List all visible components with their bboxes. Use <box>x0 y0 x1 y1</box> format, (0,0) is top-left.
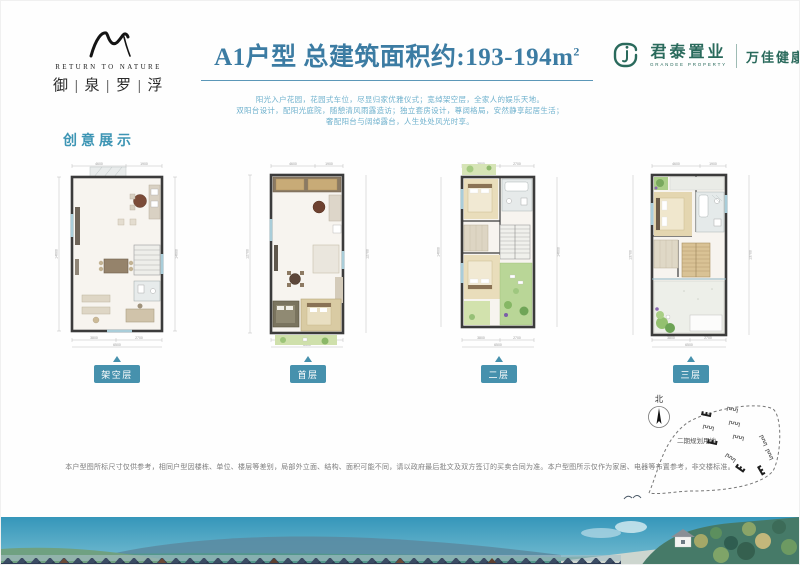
svg-text:13700: 13700 <box>629 250 633 260</box>
stairs <box>500 225 530 259</box>
bed <box>468 261 492 289</box>
kitchen-counter <box>329 195 341 221</box>
triangle-marker-icon <box>304 356 312 362</box>
developer-divider <box>736 44 737 68</box>
svg-text:14600: 14600 <box>437 247 441 257</box>
svg-text:4600: 4600 <box>672 162 680 166</box>
bathtub <box>505 182 528 191</box>
planter <box>654 177 668 190</box>
mountain-logo-icon <box>82 25 136 61</box>
master-bedroom <box>654 192 692 236</box>
floorplan-stilt-floor: 4600 1900 14600 14600 3800 2700 6500 <box>52 159 182 383</box>
title-text: A1户型 总建筑面积约:193-194m <box>214 44 573 71</box>
floor-label-third: 三层 <box>673 365 708 383</box>
roof-deck <box>273 177 341 192</box>
intro-line: 奢配阳台与阔绰露台，人生处处风光时享。 <box>1 116 799 127</box>
upper-terrace <box>670 177 724 190</box>
svg-text:6500: 6500 <box>685 343 693 347</box>
floorplan-third-floor: 4600 1900 13700 13700 3800 2700 6500 <box>626 159 756 383</box>
bed <box>468 184 492 212</box>
bedroom-2 <box>464 255 500 299</box>
disclaimer-text: 本户型图所标尺寸仅供参考，相同户型因楼栋、单位、楼层等差别，局部外立面、结构、面… <box>1 462 799 472</box>
floor-label-second: 二层 <box>481 365 516 383</box>
round-table <box>313 201 325 213</box>
upper-garden <box>462 164 496 175</box>
bedroom-1 <box>464 179 498 219</box>
svg-text:3800: 3800 <box>667 336 675 340</box>
svg-text:北: 北 <box>655 394 664 404</box>
svg-text:1900: 1900 <box>325 162 333 166</box>
floor-label-first: 首层 <box>290 365 325 383</box>
terrace-garden <box>500 263 532 325</box>
svg-text:12700: 12700 <box>366 249 370 259</box>
site-plan: 北 二期规划用地 <box>629 385 791 495</box>
svg-text:14600: 14600 <box>557 247 561 257</box>
seascape-illustration <box>1 517 800 565</box>
intro-line: 阳光入户花园，花园式车位，尽显归家优雅仪式；宽绰架空层，全家人的娱乐天地。 <box>1 94 799 105</box>
brand-name-en: RETURN TO NATURE <box>26 63 191 71</box>
entry-canopy <box>90 167 126 177</box>
svg-text:1900: 1900 <box>709 162 717 166</box>
bathroom <box>696 192 724 232</box>
bird-icon <box>621 492 645 502</box>
brand-logo: RETURN TO NATURE 御 | 泉 | 罗 | 浮 <box>26 25 191 95</box>
svg-text:14600: 14600 <box>55 249 59 259</box>
floor-label-stilt: 架空层 <box>94 365 140 383</box>
triangle-marker-icon <box>495 356 503 362</box>
cloud <box>615 521 647 533</box>
pergola <box>690 315 722 331</box>
floorplan-drawing: 4600 1900 14600 14600 3800 2700 6500 <box>52 159 182 355</box>
round-table <box>134 195 147 208</box>
floorplan-second-floor: 3800 2700 14600 14600 3800 2700 6500 <box>434 159 564 383</box>
svg-text:3800: 3800 <box>90 336 98 340</box>
dining-table <box>290 274 301 285</box>
bathtub <box>699 195 708 217</box>
developer-name-en: GRANDEE PROPERTY <box>650 63 727 68</box>
triangle-marker-icon <box>113 356 121 362</box>
lower-garden <box>464 301 490 325</box>
gj-logo-icon <box>611 41 641 71</box>
floorplan-first-floor: 4600 1900 12700 12700 3200 2300 6500 <box>243 159 373 383</box>
developer-partner: 万佳健康 <box>746 47 800 66</box>
svg-text:12700: 12700 <box>246 249 250 259</box>
page-title: A1户型 总建筑面积约:193-194m2 <box>201 37 593 81</box>
compass-icon: 北 <box>649 394 670 428</box>
svg-text:14600: 14600 <box>175 249 179 259</box>
svg-text:1900: 1900 <box>140 162 148 166</box>
island <box>313 245 339 273</box>
floorplan-drawing: 3800 2700 14600 14600 3800 2700 6500 <box>434 159 564 355</box>
garden-strip <box>275 335 337 345</box>
svg-text:2700: 2700 <box>513 162 521 166</box>
svg-text:2700: 2700 <box>513 336 521 340</box>
svg-text:6500: 6500 <box>113 343 121 347</box>
bathroom <box>502 179 532 211</box>
svg-text:13700: 13700 <box>749 250 753 260</box>
floorplan-drawing: 4600 1900 12700 12700 3200 2300 6500 <box>243 159 373 355</box>
page: RETURN TO NATURE 御 | 泉 | 罗 | 浮 A1户型 总建筑面… <box>0 0 800 565</box>
svg-text:4600: 4600 <box>95 162 103 166</box>
title-superscript: 2 <box>573 45 580 59</box>
svg-text:4600: 4600 <box>289 162 297 166</box>
brand-name-cn: 御 | 泉 | 罗 | 浮 <box>26 74 191 95</box>
svg-text:2700: 2700 <box>135 336 143 340</box>
section-label: 创意展示 <box>63 130 135 150</box>
title-divider <box>201 80 593 81</box>
bed <box>656 198 684 230</box>
intro-line: 双阳台设计，配阳光庭院，随憩清风雨露造访；独立套房设计，尊阔格局，安然静享起居生… <box>1 105 799 116</box>
bar-island <box>104 259 128 273</box>
floorplan-drawing: 4600 1900 13700 13700 3800 2700 6500 <box>626 159 756 355</box>
intro-copy: 阳光入户花园，花园式车位，尽显归家优雅仪式；宽绰架空层，全家人的娱乐天地。 双阳… <box>1 94 799 127</box>
developer-logo: 君泰置业 GRANDEE PROPERTY 万佳健康 <box>611 41 800 71</box>
svg-text:6500: 6500 <box>494 343 502 347</box>
roof-terrace <box>654 281 724 333</box>
stairs <box>682 243 710 277</box>
svg-text:3800: 3800 <box>477 336 485 340</box>
triangle-marker-icon <box>687 356 695 362</box>
developer-name-cn: 君泰置业 <box>650 45 727 61</box>
svg-text:2700: 2700 <box>704 336 712 340</box>
